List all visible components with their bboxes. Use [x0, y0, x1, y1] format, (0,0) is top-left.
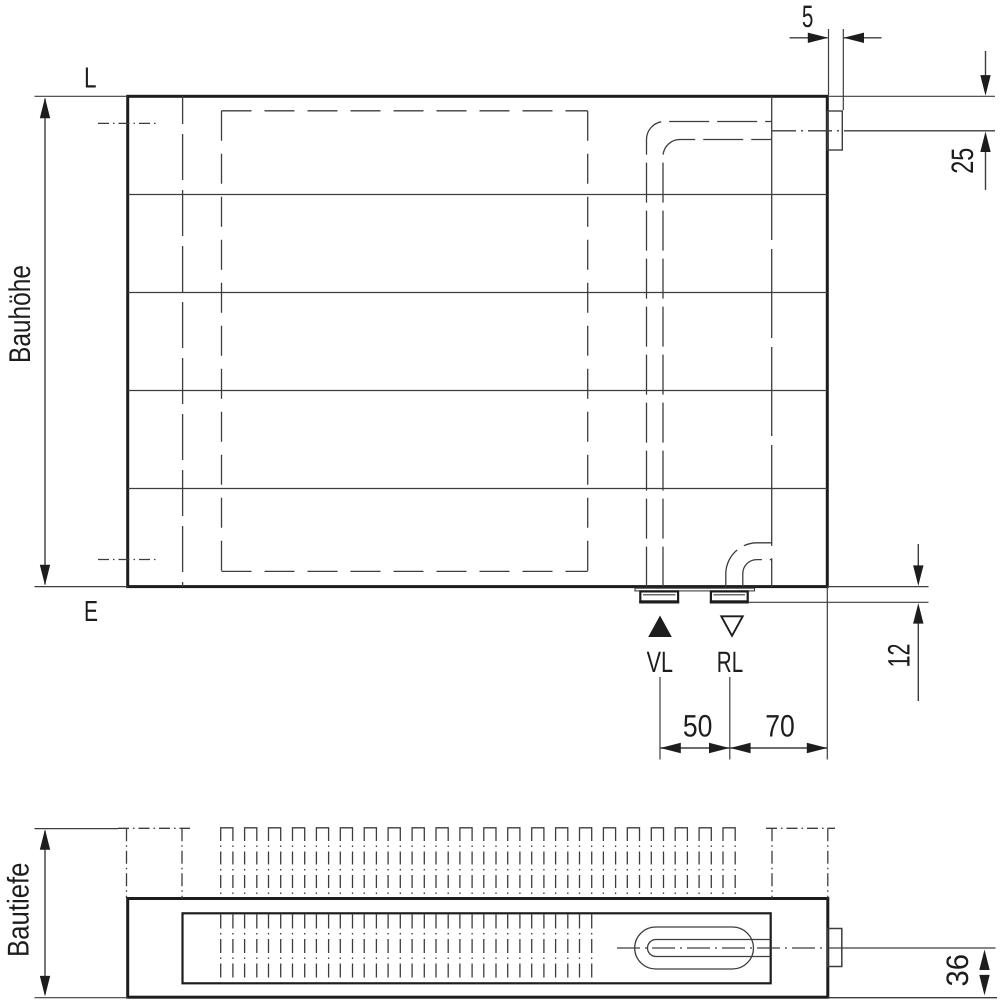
svg-text:36: 36: [940, 954, 975, 987]
svg-text:VL: VL: [647, 646, 673, 679]
svg-text:L: L: [84, 63, 97, 95]
svg-text:70: 70: [765, 708, 795, 743]
svg-text:Bauhöhe: Bauhöhe: [4, 265, 37, 363]
svg-text:5: 5: [802, 0, 814, 34]
svg-text:50: 50: [683, 708, 713, 743]
svg-text:25: 25: [945, 148, 980, 174]
svg-text:Bautiefe: Bautiefe: [2, 863, 35, 958]
svg-text:12: 12: [882, 644, 917, 668]
svg-text:RL: RL: [717, 646, 743, 679]
svg-text:E: E: [84, 596, 98, 628]
